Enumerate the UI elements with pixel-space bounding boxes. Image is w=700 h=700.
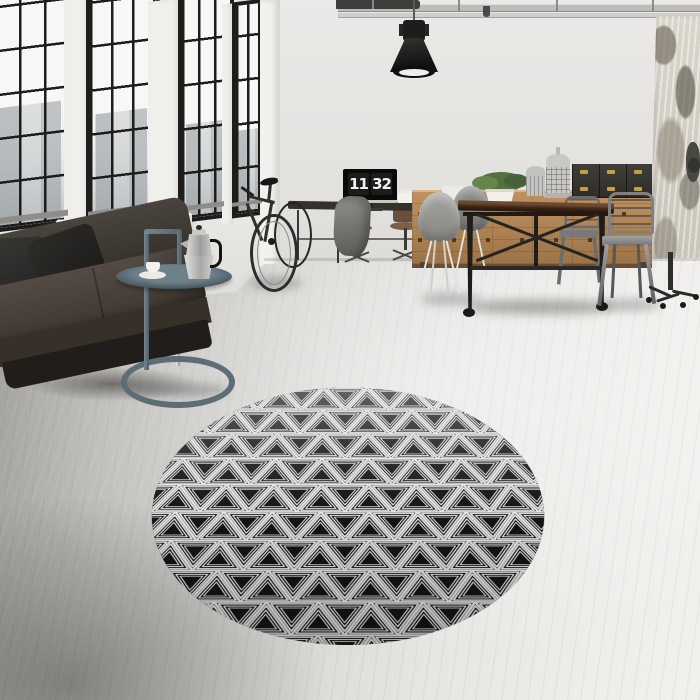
lantern-dome [546,154,570,168]
chair-backrest [608,192,654,234]
pipe-hanger-rod [652,0,654,12]
brass-latch [634,170,642,174]
wall-object-knob [688,158,700,173]
pipe-hanger-rod [372,0,374,9]
round-rug-wrap [150,385,546,635]
rug-triangle-pattern [129,387,567,645]
chair-shell [418,192,460,242]
window-muntins [0,0,72,229]
chair-shadow [420,294,480,304]
flip-clock-minutes: 32 [371,173,392,195]
table-shadow [466,300,616,314]
ceiling-pipe-dark-segment [336,0,420,9]
office-chair-column [668,252,673,290]
bicycle-front-wheel [250,214,298,292]
moka-pot-knob [196,225,202,230]
side-table-tray [116,264,232,289]
sprinkler-fitting [483,6,490,17]
draped-jacket [332,195,371,257]
loft-interior-scene: 11 32 [0,0,700,700]
table-center-support [534,214,538,270]
table-stretcher [470,266,606,270]
brass-latch [607,187,615,191]
brass-latch [634,187,642,191]
brass-latch [580,170,588,174]
lamp-diffuser [399,69,429,76]
window-muntins [90,0,156,224]
ceiling-pipe-thin [338,13,700,18]
saucer [139,271,166,279]
flip-clock-hours: 11 [348,173,369,195]
chair-caster [693,294,699,300]
pipe-hanger-rod [556,0,558,12]
lamp-fin [425,24,429,36]
side-table-pole [144,232,149,370]
bicycle-saddle [260,177,279,186]
moka-pot-top [186,234,212,256]
chair-caster [646,297,652,303]
lantern-body [546,167,570,195]
small-lantern-body [526,176,545,196]
lamp-cap [403,20,425,41]
brass-latch [607,170,615,174]
lamp-fin [399,24,403,36]
bicycle [240,172,310,290]
chair-caster [680,302,686,308]
coffee-cup [146,262,160,272]
pipe-hanger-rod [458,0,460,12]
chair-caster [660,303,666,309]
moka-pot-handle [210,239,222,268]
brass-latch [580,187,588,191]
round-geometric-rug [129,387,567,645]
side-table-loop-base [121,356,235,408]
table-caster [463,308,475,317]
